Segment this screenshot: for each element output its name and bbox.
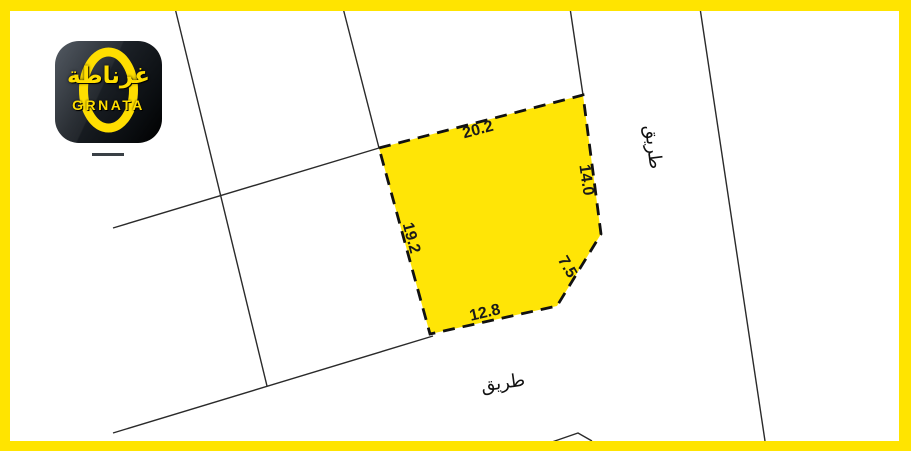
parcel-boundary-line-left-of-plot xyxy=(113,148,379,228)
road-edge-line-bottom xyxy=(113,336,433,433)
logo-arabic-wordmark: غرناطة xyxy=(55,63,162,91)
logo-latin-wordmark: GRNATA xyxy=(55,97,162,113)
road-edge-line-right-far xyxy=(700,8,765,441)
logo-s-ring-icon xyxy=(55,41,162,143)
logo-underline-dash xyxy=(92,153,124,156)
parcel-boundary-line-above-plot xyxy=(343,8,379,148)
road-label-bottom: طريق xyxy=(480,370,527,397)
grnata-logo: غرناطة GRNATA xyxy=(55,41,162,143)
road-label-right: طريق xyxy=(640,124,666,171)
parcel-corner-bottom-center xyxy=(549,433,592,443)
parcel-boundary-line-upper-left xyxy=(175,8,267,386)
plot-map-brochure: 20.2 14.0 19.2 7.5 12.8 طريق طريق غرناطة… xyxy=(0,0,911,451)
road-edge-line-right-near xyxy=(570,8,583,95)
